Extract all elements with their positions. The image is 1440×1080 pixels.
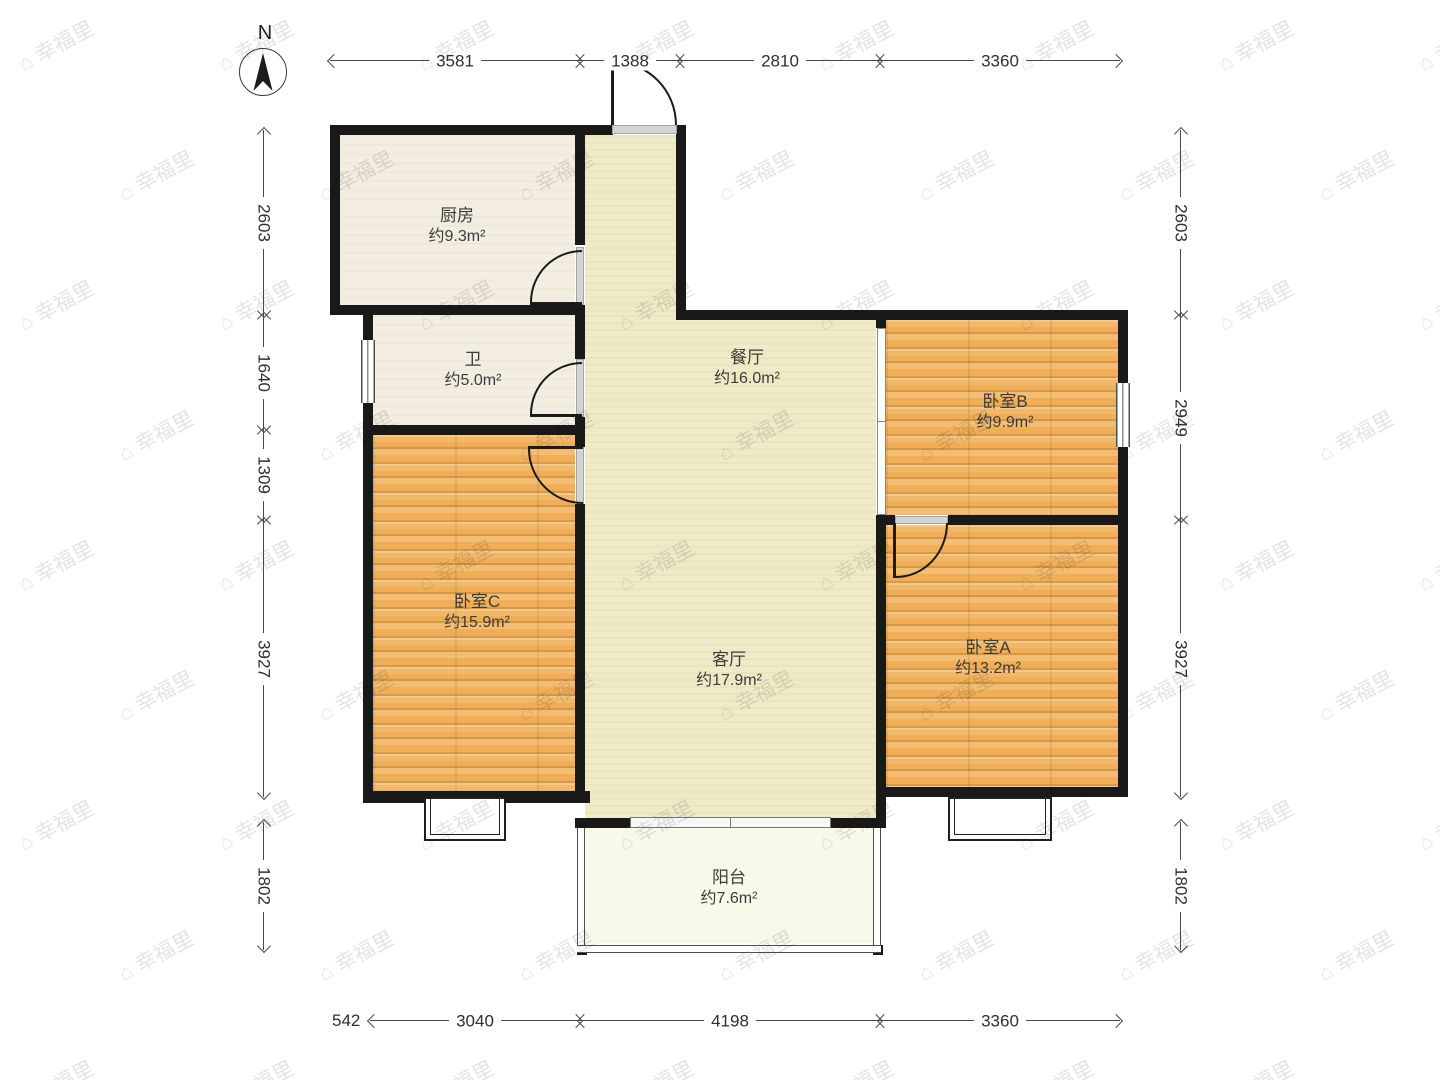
- room-label-kitchen: 厨房 约9.3m²: [372, 198, 542, 254]
- dimension-label: 3360: [974, 52, 1026, 71]
- dimension-top-1: 3581: [330, 60, 580, 61]
- watermark: ⌂ 幸福里: [1413, 273, 1440, 338]
- dimension-label: 2603: [255, 197, 274, 249]
- dimension-left-2: 1640: [263, 315, 264, 430]
- dimension-right-1: 2603: [1180, 130, 1181, 315]
- bedroomC-bay-window: [424, 797, 506, 841]
- watermark: ⌂ 幸福里: [1213, 793, 1299, 858]
- balcony-bottom-window-wall: [577, 945, 881, 953]
- dimension-left-5: 1802: [263, 822, 264, 950]
- watermark: ⌂ 幸福里: [1313, 143, 1399, 208]
- room-area: 约5.0m²: [445, 371, 502, 391]
- dimension-label: 2810: [754, 52, 806, 71]
- watermark: ⌂ 幸福里: [13, 1053, 99, 1080]
- watermark: ⌂ 幸福里: [413, 1053, 499, 1080]
- room-name: 阳台: [712, 867, 746, 888]
- dimension-label: 2949: [1172, 392, 1191, 444]
- watermark: ⌂ 幸福里: [213, 533, 299, 598]
- wall: [363, 305, 373, 340]
- watermark: ⌂ 幸福里: [1413, 533, 1440, 598]
- room-label-dining: 餐厅 约16.0m²: [662, 340, 832, 396]
- watermark: ⌂ 幸福里: [213, 1053, 299, 1080]
- room-area: 约7.6m²: [701, 889, 758, 909]
- living-balcony-sliding-door: [630, 817, 831, 828]
- room-name: 卧室B: [982, 391, 1027, 412]
- dimension-left-3: 1309: [263, 430, 264, 520]
- watermark: ⌂ 幸福里: [213, 273, 299, 338]
- floor-plan-canvas: 厨房 约9.3m² 卫 约5.0m² 餐厅 约16.0m² 卧室B 约9.9m²…: [0, 0, 1440, 1080]
- watermark: ⌂ 幸福里: [913, 143, 999, 208]
- entry-door-arc: [614, 61, 677, 125]
- wall: [1118, 310, 1128, 385]
- room-area: 约16.0m²: [714, 369, 780, 389]
- bathroom-window: [361, 340, 375, 403]
- room-name: 餐厅: [730, 347, 764, 368]
- wall: [575, 504, 585, 793]
- bathroom-door-leaf: [530, 414, 582, 417]
- watermark: ⌂ 幸福里: [1313, 403, 1399, 468]
- balcony-left-window-wall: [577, 828, 585, 947]
- watermark: ⌂ 幸福里: [1113, 923, 1199, 988]
- watermark: ⌂ 幸福里: [1313, 923, 1399, 988]
- entry-door-threshold: [612, 125, 677, 134]
- wall: [676, 310, 1128, 320]
- watermark: ⌂ 幸福里: [13, 533, 99, 598]
- dimension-label: 3927: [255, 633, 274, 685]
- room-name: 厨房: [440, 205, 474, 226]
- dimension-right-3: 3927: [1180, 520, 1181, 797]
- balcony-right-window-wall: [873, 828, 881, 947]
- wall: [948, 515, 1128, 525]
- watermark: ⌂ 幸福里: [813, 1053, 899, 1080]
- dimension-bottom-2: 4198: [580, 1020, 880, 1021]
- bay-window-inner-frame: [430, 797, 500, 835]
- watermark: ⌂ 幸福里: [613, 1053, 699, 1080]
- entry-hall-floor: [585, 135, 676, 320]
- dimension-label: 4198: [704, 1012, 756, 1031]
- room-label-bedroomC: 卧室C 约15.9m²: [392, 584, 562, 640]
- bedroomB-window: [1116, 383, 1130, 447]
- dimension-bottom-3: 3360: [880, 1020, 1120, 1021]
- dimension-top-2: 1388: [580, 60, 680, 61]
- dimension-label: 3360: [974, 1012, 1026, 1031]
- watermark: ⌂ 幸福里: [1413, 13, 1440, 78]
- north-compass: N: [230, 22, 300, 106]
- dimension-label: 1388: [604, 52, 656, 71]
- wall: [363, 425, 585, 435]
- north-label: N: [258, 22, 272, 45]
- dimension-top-3: 2810: [680, 60, 880, 61]
- watermark: ⌂ 幸福里: [113, 403, 199, 468]
- bay-window-inner-frame: [954, 797, 1046, 835]
- wall: [575, 125, 585, 245]
- dimension-label: 3040: [449, 1012, 501, 1031]
- dimension-label: 1640: [255, 347, 274, 399]
- watermark: ⌂ 幸福里: [1413, 793, 1440, 858]
- dining-bedroomB-sliding-door: [877, 328, 886, 515]
- watermark: ⌂ 幸福里: [813, 13, 899, 78]
- watermark: ⌂ 幸福里: [113, 663, 199, 728]
- watermark: ⌂ 幸福里: [1313, 663, 1399, 728]
- watermark: ⌂ 幸福里: [1213, 533, 1299, 598]
- dimension-label: 2603: [1172, 197, 1191, 249]
- wall: [876, 515, 886, 828]
- room-area: 约13.2m²: [955, 659, 1021, 679]
- room-area: 约9.3m²: [429, 227, 486, 247]
- wall: [876, 787, 1128, 797]
- watermark: ⌂ 幸福里: [713, 143, 799, 208]
- room-area: 约17.9m²: [696, 671, 762, 691]
- watermark: ⌂ 幸福里: [213, 793, 299, 858]
- wall: [1118, 445, 1128, 797]
- watermark: ⌂ 幸福里: [1213, 273, 1299, 338]
- watermark: ⌂ 幸福里: [1013, 1053, 1099, 1080]
- dimension-bottom-0: 542: [332, 1012, 360, 1029]
- room-label-bedroomB: 卧室B 约9.9m²: [920, 384, 1090, 440]
- dimension-label: 3581: [429, 52, 481, 71]
- wall: [575, 818, 630, 828]
- room-area: 约9.9m²: [977, 413, 1034, 433]
- watermark: ⌂ 幸福里: [313, 923, 399, 988]
- room-name: 客厅: [712, 649, 746, 670]
- dimension-left-4: 3927: [263, 520, 264, 797]
- kitchen-door-leaf: [530, 302, 582, 305]
- dimension-right-4: 1802: [1180, 822, 1181, 950]
- watermark: ⌂ 幸福里: [113, 923, 199, 988]
- room-name: 卧室C: [454, 591, 500, 612]
- dimension-bottom-1: 3040: [370, 1020, 580, 1021]
- wall: [831, 818, 886, 828]
- wall: [330, 125, 340, 315]
- room-label-bathroom: 卫 约5.0m²: [388, 342, 558, 398]
- watermark: ⌂ 幸福里: [13, 793, 99, 858]
- wall: [330, 125, 613, 135]
- watermark: ⌂ 幸福里: [13, 273, 99, 338]
- watermark: ⌂ 幸福里: [1213, 13, 1299, 78]
- wall: [876, 310, 886, 328]
- room-label-bedroomA: 卧室A 约13.2m²: [903, 630, 1073, 686]
- wall: [676, 125, 686, 320]
- watermark: ⌂ 幸福里: [913, 923, 999, 988]
- watermark: ⌂ 幸福里: [1213, 1053, 1299, 1080]
- watermark: ⌂ 幸福里: [1413, 1053, 1440, 1080]
- room-name: 卫: [465, 349, 482, 370]
- dimension-left-1: 2603: [263, 130, 264, 315]
- dimension-top-4: 3360: [880, 60, 1120, 61]
- dimension-label: 1802: [1172, 860, 1191, 912]
- dimension-label: 1309: [255, 449, 274, 501]
- dimension-label: 3927: [1172, 633, 1191, 685]
- dimension-label: 1802: [255, 860, 274, 912]
- room-name: 卧室A: [965, 637, 1010, 658]
- wall: [363, 403, 373, 803]
- room-label-balcony: 阳台 约7.6m²: [644, 860, 814, 916]
- bedroomA-bay-window: [948, 797, 1052, 841]
- dimension-right-2: 2949: [1180, 315, 1181, 520]
- room-area: 约15.9m²: [444, 613, 510, 633]
- watermark: ⌂ 幸福里: [113, 143, 199, 208]
- room-label-living: 客厅 约17.9m²: [644, 642, 814, 698]
- watermark: ⌂ 幸福里: [13, 13, 99, 78]
